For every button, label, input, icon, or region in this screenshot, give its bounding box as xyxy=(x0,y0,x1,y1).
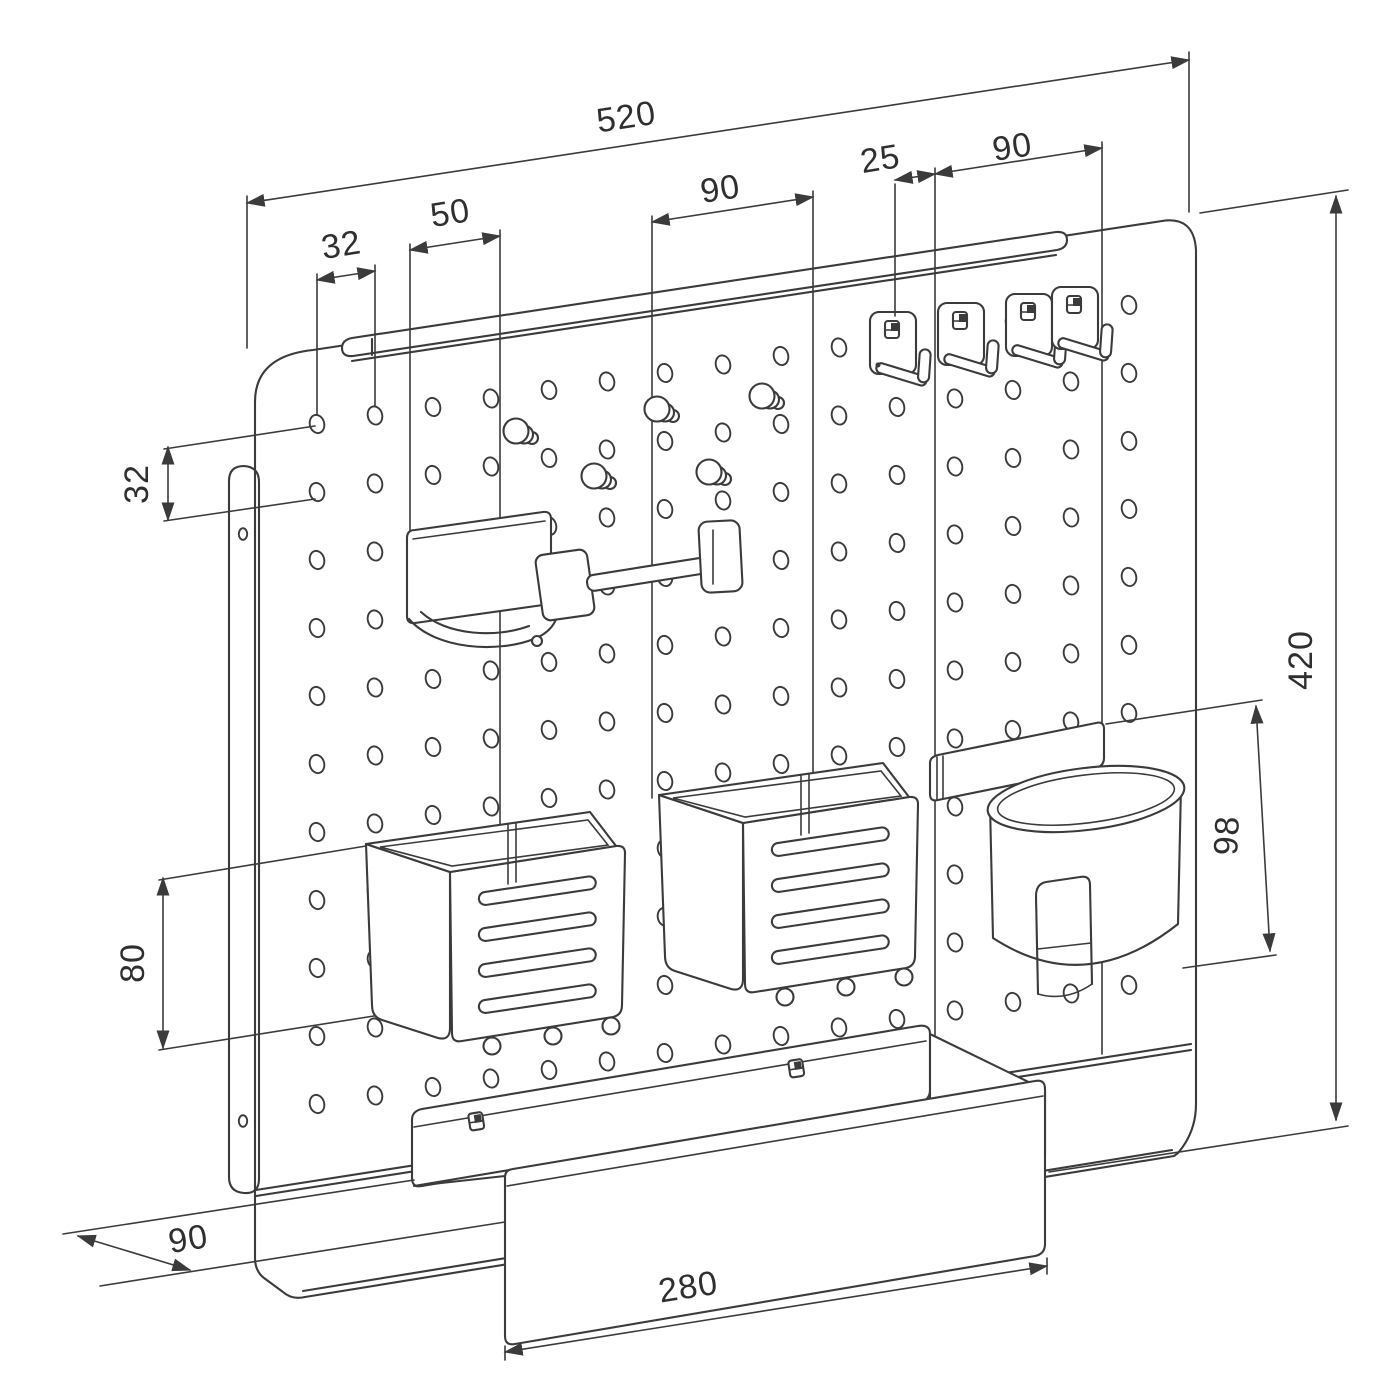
dim-label-accessory-spacing: 90 xyxy=(698,167,743,211)
peg-cap xyxy=(645,397,670,422)
hook-plate-dot xyxy=(876,363,881,368)
peg-cap xyxy=(697,460,722,485)
hook-rod-tip xyxy=(1100,324,1113,358)
hook-rod-tip xyxy=(986,340,999,374)
bracket-screw-hole xyxy=(239,1115,247,1127)
dim-accessory-spacing: 90 xyxy=(652,167,813,222)
dim-label-cup-holder-height: 98 xyxy=(1207,815,1247,857)
dim-label-hook-bracket-width: 50 xyxy=(428,191,473,235)
pegboard-technical-drawing: 520 90 25 90 50 32 32 80 90 xyxy=(0,0,1400,1400)
shelf-keyhole-slot xyxy=(788,1059,804,1078)
slotted-basket-2 xyxy=(659,763,918,1006)
dim-label-shelf-depth: 90 xyxy=(166,1217,211,1261)
dim-label-hook-group-width: 90 xyxy=(990,125,1035,169)
dim-hole-pitch-horizontal: 32 xyxy=(317,223,375,280)
dim-hook-group-width: 90 xyxy=(935,125,1102,174)
dim-hook-bracket-width: 50 xyxy=(410,191,500,250)
bracket-screw-hole xyxy=(239,528,247,540)
slotted-basket-1 xyxy=(366,812,625,1055)
shelf-keyhole-slot xyxy=(468,1112,484,1131)
dim-label-overall-width: 520 xyxy=(594,94,659,141)
hook-clamp-block xyxy=(535,549,596,622)
dim-label-hole-pitch-horizontal: 32 xyxy=(319,223,364,267)
hook-peg-tip xyxy=(532,636,542,646)
technical-drawing-page: 520 90 25 90 50 32 32 80 90 xyxy=(0,0,1400,1400)
dim-label-hook-offset: 25 xyxy=(858,137,903,181)
peg-cap xyxy=(504,419,529,444)
hook-end-tab xyxy=(698,520,743,593)
dim-label-basket-height: 80 xyxy=(114,943,152,983)
dim-label-hole-pitch-vertical: 32 xyxy=(118,464,156,504)
peg-cap xyxy=(582,464,607,489)
headphone-hook-backplate xyxy=(407,512,551,623)
hook-rod-tip xyxy=(918,349,931,383)
peg-cap xyxy=(750,384,775,409)
dim-label-overall-height: 420 xyxy=(1282,630,1320,690)
